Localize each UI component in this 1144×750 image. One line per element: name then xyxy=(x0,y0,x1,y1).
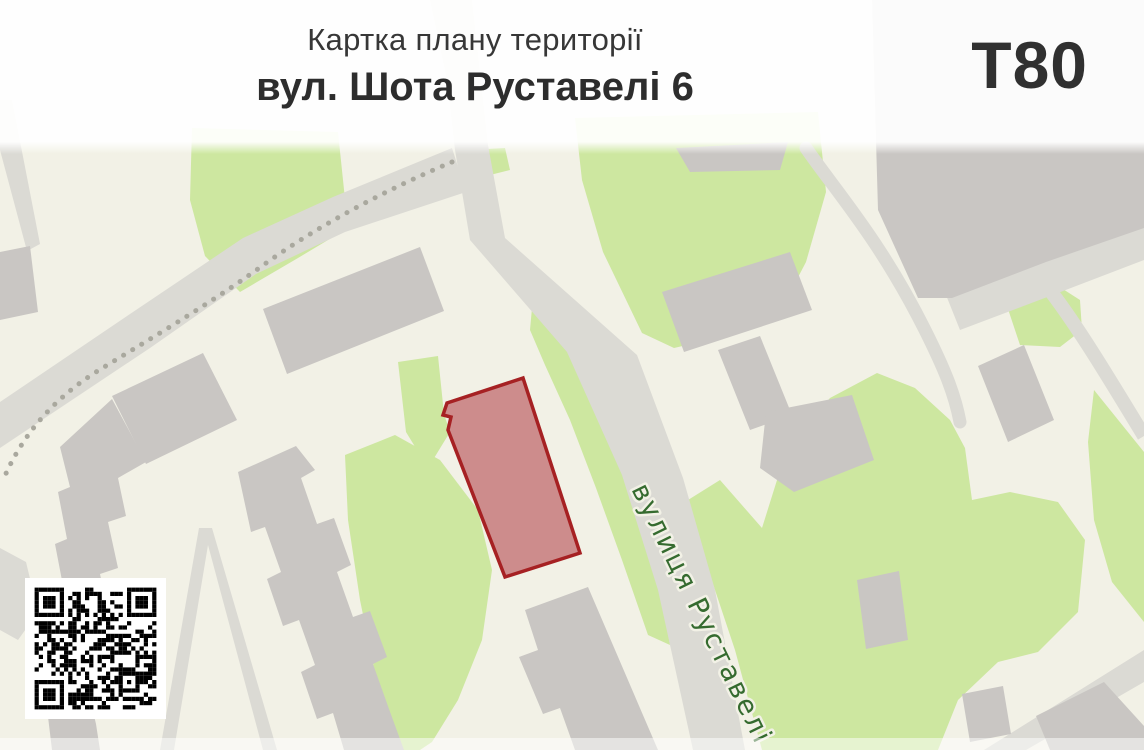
plan-card: вулиця Руставелі Картка плану території … xyxy=(0,0,1144,750)
bottom-fade xyxy=(0,738,1144,750)
footpath-lambda xyxy=(160,528,277,750)
building xyxy=(962,686,1011,742)
qr-code xyxy=(25,578,166,719)
header: Картка плану території вул. Шота Руставе… xyxy=(0,0,1144,142)
sheet-code: T80 xyxy=(971,32,1088,98)
building xyxy=(978,345,1054,442)
building xyxy=(519,587,658,750)
building xyxy=(263,247,444,374)
page-subtitle-address: вул. Шота Руставелі 6 xyxy=(0,60,950,114)
page-title: Картка плану території xyxy=(0,20,950,60)
building xyxy=(857,571,908,649)
building xyxy=(0,246,38,320)
title-block: Картка плану території вул. Шота Руставе… xyxy=(0,20,950,114)
